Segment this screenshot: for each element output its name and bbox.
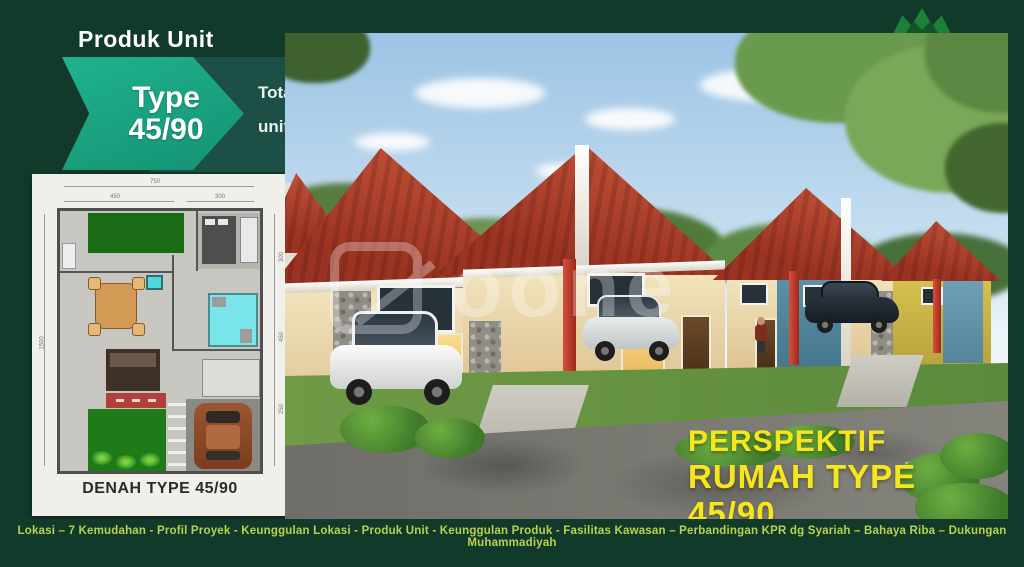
dark-sedan-car <box>805 281 899 333</box>
window <box>740 283 768 305</box>
type-badge-line1: Type <box>132 82 200 114</box>
photo-caption-line1: PERSPEKTIF <box>688 425 1008 459</box>
floor-plan-drawing <box>57 208 263 474</box>
plan-kitchen-counter <box>110 353 156 367</box>
car-wheel <box>649 341 669 361</box>
footer-nav-text: Lokasi – 7 Kemudahan - Profil Proyek - K… <box>0 525 1024 549</box>
plan-terrace-mark <box>148 399 156 402</box>
hedge <box>340 405 430 453</box>
plan-wardrobe <box>240 217 258 263</box>
cloud <box>585 108 675 130</box>
plan-wall <box>196 211 198 271</box>
dim-line-top-total <box>64 186 254 187</box>
car-wheel <box>817 317 833 333</box>
plan-chair <box>88 323 101 336</box>
plan-plant <box>92 451 112 465</box>
perspective-photo: oone PERSPEKTIF RUMAH TYPE 45/90 <box>285 33 1008 519</box>
page-title: Produk Unit <box>78 26 214 53</box>
dim-label-top-left: 450 <box>110 194 120 200</box>
silver-hatchback-car <box>583 295 679 361</box>
hedge <box>415 418 485 458</box>
plan-pillow <box>205 219 215 225</box>
floor-plan-card: 750 450 300 1500 300 450 250 <box>32 174 288 516</box>
plan-wall <box>172 255 174 349</box>
dim-line-top-left <box>64 201 174 202</box>
plan-chair <box>132 277 145 290</box>
cloud <box>415 78 545 108</box>
person-head <box>757 317 765 325</box>
dim-line-right <box>274 214 275 466</box>
plan-car-rear-window <box>206 451 240 460</box>
red-pillar <box>563 259 576 379</box>
person-torso <box>755 325 767 341</box>
plan-garden-top <box>88 213 184 253</box>
plan-plant <box>116 455 136 469</box>
plan-wall <box>60 271 172 273</box>
dim-label-top-right: 300 <box>215 194 225 200</box>
plan-parking-stripes <box>168 403 186 471</box>
slide: Produk Unit Total 406 unit rumah, Type 4… <box>0 0 1024 567</box>
plan-terrace-mark <box>116 399 124 402</box>
footer-bar: Lokasi – 7 Kemudahan - Profil Proyek - K… <box>0 519 1024 567</box>
type-badge-line2: 45/90 <box>128 114 203 146</box>
house-wall-blue <box>943 279 983 363</box>
right-edge-strip <box>1008 33 1024 519</box>
plan-sink <box>212 297 226 307</box>
person <box>755 317 767 355</box>
dim-label-left: 1500 <box>40 336 46 349</box>
plan-service-room <box>202 359 260 397</box>
dim-line-top-right <box>187 201 254 202</box>
car-wheel <box>424 379 450 405</box>
plan-closet <box>62 243 76 269</box>
plan-wall <box>172 349 260 351</box>
car-wheel <box>595 341 615 361</box>
gable-trim <box>575 145 589 275</box>
photo-caption-line2: RUMAH TYPE 45/90 <box>688 459 1008 519</box>
cloud <box>355 133 430 151</box>
plan-car-windshield <box>206 411 240 423</box>
plan-terrace <box>106 393 166 408</box>
plan-plant <box>140 453 160 467</box>
dim-label-top-total: 750 <box>150 179 160 185</box>
car-wheel <box>871 317 887 333</box>
white-sedan-car <box>330 311 462 407</box>
plan-car-roof <box>206 425 240 449</box>
floor-plan-caption: DENAH TYPE 45/90 <box>32 480 288 498</box>
photo-caption: PERSPEKTIF RUMAH TYPE 45/90 <box>688 425 1008 519</box>
plan-chair <box>88 277 101 290</box>
plan-coffee-table <box>146 275 163 290</box>
red-pillar <box>789 271 799 365</box>
car-wheel <box>346 379 372 405</box>
red-pillar <box>933 279 941 353</box>
plan-chair <box>132 323 145 336</box>
plan-dining-table <box>95 283 137 329</box>
plan-pillow <box>218 219 228 225</box>
person-legs <box>757 341 765 353</box>
plan-terrace-mark <box>132 399 140 402</box>
plan-toilet <box>240 329 252 343</box>
